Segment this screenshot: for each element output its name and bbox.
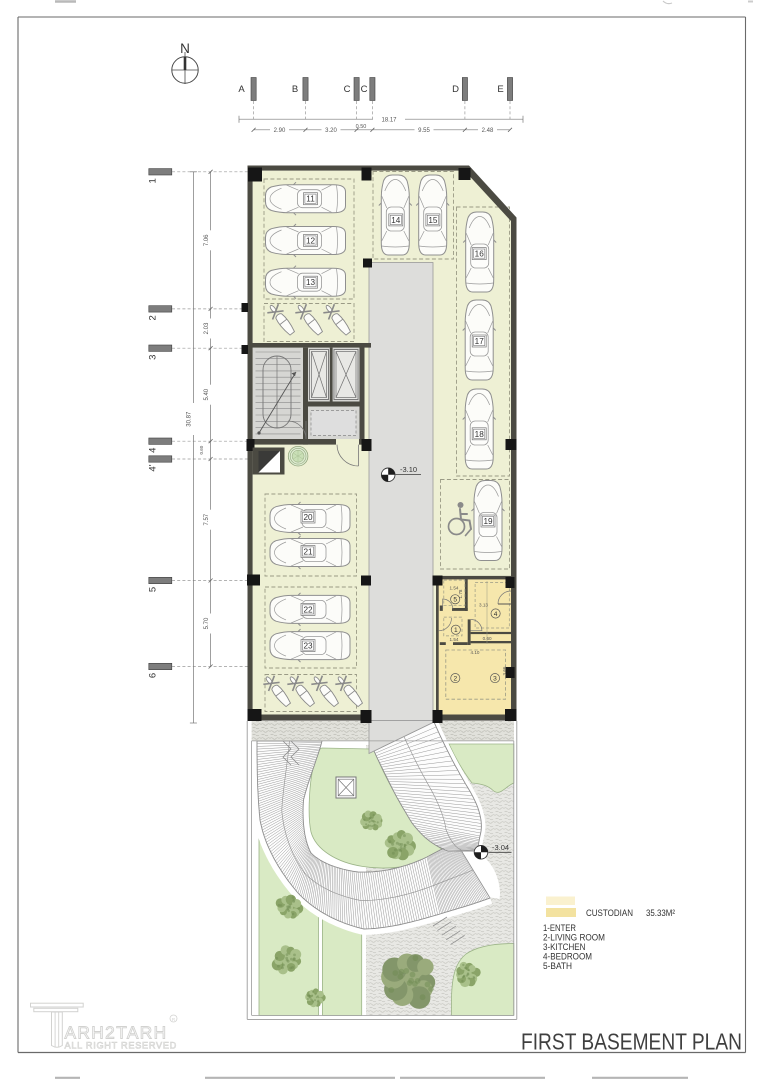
svg-text:23: 23 — [303, 642, 313, 651]
svg-text:13: 13 — [306, 278, 316, 287]
svg-text:16: 16 — [475, 250, 485, 259]
svg-text:18.17: 18.17 — [381, 118, 397, 124]
svg-text:18: 18 — [475, 430, 485, 439]
svg-text:6: 6 — [148, 673, 159, 678]
svg-text:4.10: 4.10 — [471, 650, 480, 655]
svg-text:0.60: 0.60 — [483, 636, 492, 641]
svg-text:15: 15 — [428, 216, 438, 225]
svg-text:3.13: 3.13 — [479, 602, 488, 607]
svg-text:5.40: 5.40 — [204, 388, 210, 400]
svg-text:22: 22 — [303, 605, 313, 614]
svg-text:N: N — [180, 41, 190, 56]
svg-text:7.57: 7.57 — [204, 513, 210, 525]
svg-text:1.54: 1.54 — [450, 637, 459, 642]
svg-text:5.70: 5.70 — [204, 617, 210, 629]
svg-text:1: 1 — [454, 627, 458, 634]
svg-text:21: 21 — [303, 548, 313, 557]
svg-text:B: B — [292, 84, 298, 95]
svg-text:2.90: 2.90 — [274, 128, 286, 134]
svg-text:CUSTODIAN: CUSTODIAN — [586, 908, 633, 918]
svg-text:3: 3 — [493, 675, 497, 682]
svg-text:1: 1 — [148, 178, 159, 183]
svg-text:20: 20 — [303, 513, 313, 522]
svg-text:2: 2 — [453, 675, 457, 682]
svg-text:14: 14 — [391, 216, 401, 225]
svg-text:FIRST BASEMENT PLAN: FIRST BASEMENT PLAN — [521, 1029, 742, 1055]
svg-text:E: E — [497, 84, 503, 95]
svg-text:2.03: 2.03 — [204, 322, 210, 334]
svg-text:5-BATH: 5-BATH — [543, 961, 572, 971]
svg-text:5: 5 — [148, 587, 159, 592]
svg-text:2-LIVING ROOM: 2-LIVING ROOM — [543, 933, 605, 943]
svg-text:35.33M²: 35.33M² — [646, 908, 675, 918]
svg-text:ARH2TARH: ARH2TARH — [65, 1023, 168, 1043]
svg-text:C: C — [344, 84, 351, 95]
svg-text:17: 17 — [475, 337, 485, 346]
svg-text:3.20: 3.20 — [325, 128, 337, 134]
svg-text:4: 4 — [494, 611, 498, 618]
svg-text:30.87: 30.87 — [187, 411, 193, 427]
svg-text:9.55: 9.55 — [418, 128, 430, 134]
svg-text:C: C — [361, 84, 368, 95]
svg-text:1.78: 1.78 — [458, 589, 463, 598]
svg-text:19: 19 — [483, 517, 493, 526]
svg-text:12: 12 — [306, 237, 316, 246]
svg-text:ALL RIGHT RESERVED: ALL RIGHT RESERVED — [65, 1041, 178, 1051]
svg-text:11: 11 — [306, 195, 315, 204]
svg-text:7.06: 7.06 — [204, 234, 210, 246]
svg-text:3-KITCHEN: 3-KITCHEN — [543, 942, 586, 952]
svg-text:5: 5 — [453, 597, 457, 604]
svg-text:2.48: 2.48 — [482, 128, 494, 134]
svg-text:-3.10: -3.10 — [400, 465, 417, 474]
svg-text:4-BEDROOM: 4-BEDROOM — [543, 952, 592, 962]
svg-text:0.60: 0.60 — [199, 445, 204, 454]
svg-text:A: A — [238, 84, 245, 95]
svg-text:1-ENTER: 1-ENTER — [543, 923, 576, 933]
svg-text:4': 4' — [148, 464, 159, 471]
svg-text:-3.04: -3.04 — [492, 843, 509, 852]
svg-text:4: 4 — [148, 448, 159, 453]
svg-text:D: D — [452, 84, 459, 95]
svg-text:2: 2 — [148, 315, 159, 320]
svg-text:3: 3 — [148, 355, 159, 360]
